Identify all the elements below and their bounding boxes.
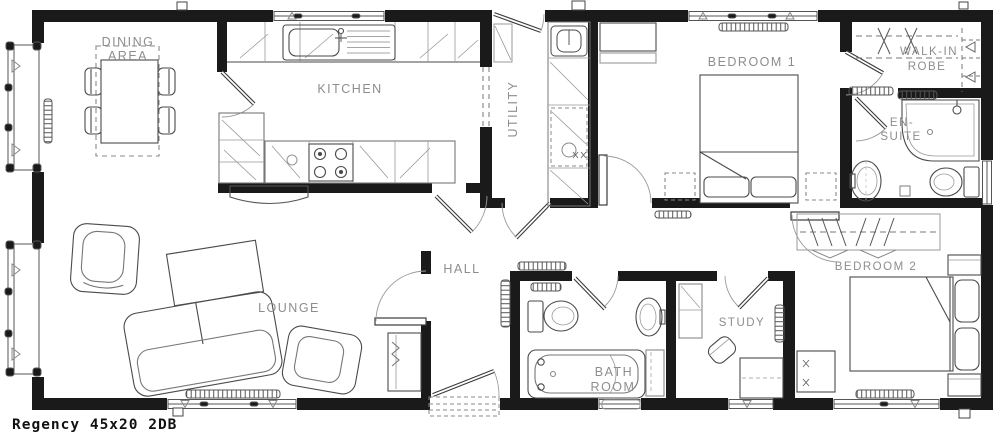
floor-plan-svg: DINING AREA KITCHEN UTILITY BEDROOM 1 WA… — [0, 0, 1000, 442]
dining-bay-window — [5, 42, 41, 172]
ensuite-toilet — [930, 167, 979, 197]
bedroom2-wardrobe — [797, 214, 940, 258]
plan-title: Regency 45x20 2DB — [12, 417, 177, 433]
study-window — [729, 400, 773, 409]
rug — [166, 240, 263, 305]
study-cupboard — [679, 284, 702, 338]
bedroom1-furniture — [600, 23, 836, 203]
lounge-window — [168, 400, 296, 409]
ensuite-basin — [850, 161, 881, 201]
label-bedroom2: BEDROOM 2 — [835, 261, 918, 273]
armchair — [70, 223, 141, 295]
label-robe-line2: ROBE — [908, 61, 947, 73]
ensuite-window — [983, 161, 992, 204]
kitchen-units — [219, 22, 480, 204]
study-furniture — [679, 284, 783, 398]
label-utility: UTILITY — [506, 80, 520, 137]
label-bathroom-line2: ROOM — [591, 380, 636, 394]
robe-fittings — [856, 28, 980, 92]
label-dining-line1: DINING — [102, 35, 155, 49]
floor-plan: DINING AREA KITCHEN UTILITY BEDROOM 1 WA… — [0, 0, 1000, 442]
label-hall: HALL — [443, 262, 480, 276]
bathroom-basin — [636, 298, 665, 336]
bedside-table — [948, 255, 981, 275]
hob — [309, 144, 353, 181]
radiators — [44, 23, 937, 398]
bathroom-toilet — [528, 301, 578, 332]
kitchen-window — [274, 12, 384, 21]
bedroom2-chest — [797, 351, 835, 392]
label-study: STUDY — [719, 317, 765, 329]
label-dining-line2: AREA — [108, 49, 148, 63]
label-lounge: LOUNGE — [258, 301, 320, 315]
label-robe-line1: WALK-IN — [900, 46, 958, 58]
entrance-steps — [429, 397, 499, 416]
armchair — [280, 324, 363, 396]
bedroom1-dresser — [600, 23, 656, 63]
bedside-table — [806, 173, 836, 200]
bathroom-cupboard — [646, 350, 664, 396]
dining-table — [101, 60, 158, 143]
lounge-bay-window — [5, 241, 41, 376]
label-bedroom1: BEDROOM 1 — [708, 55, 797, 69]
bathroom-window — [599, 400, 640, 409]
label-ensuite-line2: SUITE — [880, 131, 921, 143]
bedside-table — [948, 374, 981, 396]
bedroom1-window — [689, 12, 817, 21]
label-bathroom-line1: BATH — [595, 365, 633, 379]
lounge-furniture — [70, 223, 421, 399]
label-ensuite-line1: EN- — [890, 117, 914, 129]
bedside-table — [665, 173, 695, 200]
bedroom2-furniture — [797, 214, 981, 396]
study-chair — [706, 334, 739, 366]
ensuite-accessory — [900, 186, 910, 196]
bed1 — [700, 75, 798, 203]
study-desk — [740, 358, 783, 398]
ensuite-fittings — [850, 100, 979, 201]
bedroom2-window — [834, 400, 939, 409]
tv-unit — [388, 333, 421, 391]
walls — [32, 10, 993, 410]
bed2 — [850, 277, 979, 371]
label-kitchen: KITCHEN — [317, 82, 382, 96]
